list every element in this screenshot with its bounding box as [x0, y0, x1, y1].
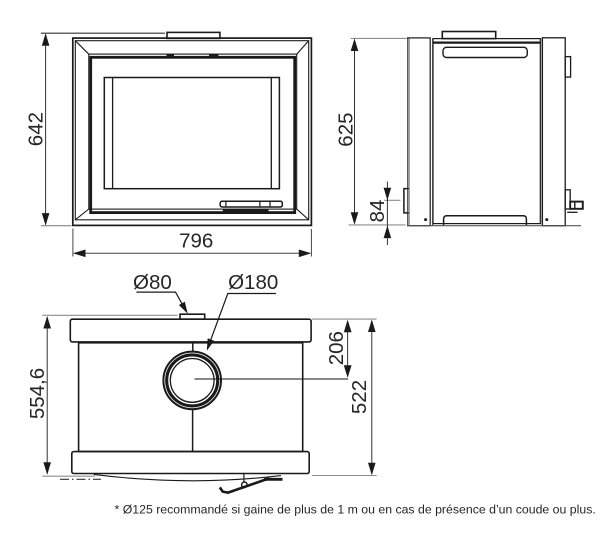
svg-text:Ø180: Ø180 — [228, 271, 278, 294]
svg-text:554,6: 554,6 — [26, 368, 49, 419]
svg-text:* Ø125 recommandé si gaine de: * Ø125 recommandé si gaine de plus de 1 … — [115, 503, 596, 517]
svg-text:84: 84 — [366, 200, 389, 223]
svg-text:Ø80: Ø80 — [133, 271, 172, 294]
svg-text:642: 642 — [24, 112, 47, 146]
svg-text:625: 625 — [335, 112, 358, 146]
svg-text:522: 522 — [348, 380, 371, 414]
svg-text:796: 796 — [179, 230, 213, 253]
svg-text:206: 206 — [325, 331, 348, 365]
